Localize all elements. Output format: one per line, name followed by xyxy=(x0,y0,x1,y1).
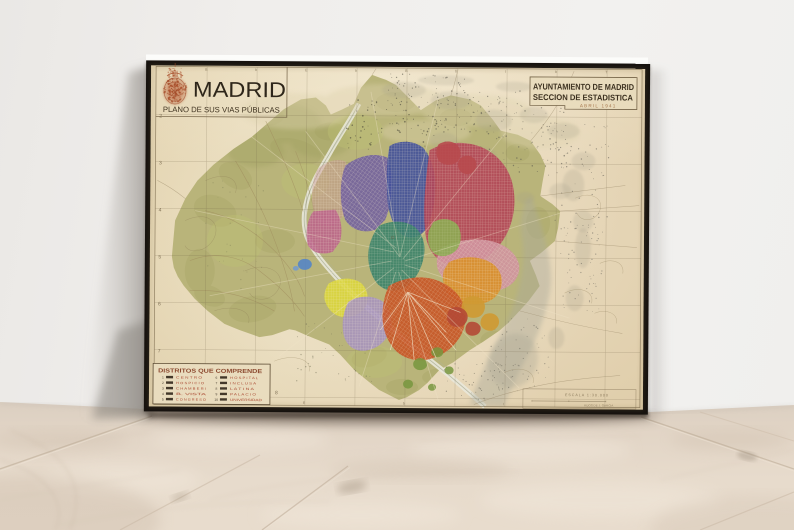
svg-text:I: I xyxy=(503,402,504,406)
svg-text:C E N T R O: C E N T R O xyxy=(176,376,203,380)
svg-text:C H A M B E R I: C H A M B E R I xyxy=(176,387,206,391)
svg-text:B. VISTA: B. VISTA xyxy=(176,392,208,396)
svg-text:5: 5 xyxy=(158,254,161,260)
svg-text:I: I xyxy=(505,70,506,74)
svg-text:P A L A C I O: P A L A C I O xyxy=(230,392,257,396)
svg-text:3: 3 xyxy=(162,386,164,390)
svg-text:UNIVERSIDAD: UNIVERSIDAD xyxy=(230,398,263,402)
svg-text:H O S P I C I O: H O S P I C I O xyxy=(176,381,205,385)
svg-text:10: 10 xyxy=(214,398,218,402)
svg-text:8: 8 xyxy=(275,390,278,396)
svg-text:O: O xyxy=(391,235,395,240)
svg-text:b: b xyxy=(255,68,257,72)
svg-text:L A T I N A: L A T I N A xyxy=(230,387,255,391)
svg-text:6: 6 xyxy=(158,301,161,307)
svg-text:9: 9 xyxy=(215,392,217,396)
svg-text:DISTRITOS QUE COMPRENDE: DISTRITOS QUE COMPRENDE xyxy=(158,368,262,375)
svg-text:ABRIL 1941: ABRIL 1941 xyxy=(580,103,617,108)
svg-text:I N C L U S A: I N C L U S A xyxy=(230,381,257,385)
svg-text:8: 8 xyxy=(215,387,217,391)
svg-text:PLANO DE SUS VIAS PÚBLICAS: PLANO DE SUS VIAS PÚBLICAS xyxy=(163,105,280,115)
svg-text:H O S P I T A L: H O S P I T A L xyxy=(230,376,258,380)
svg-text:MADRID: MADRID xyxy=(193,78,286,103)
svg-text:ESCALA 1:30.000: ESCALA 1:30.000 xyxy=(565,393,609,397)
svg-text:SECCION DE ESTADISTICA: SECCION DE ESTADISTICA xyxy=(533,93,633,103)
svg-text:HIJOS DE J. GARCIA: HIJOS DE J. GARCIA xyxy=(584,403,613,407)
svg-text:4: 4 xyxy=(159,207,162,213)
svg-text:5: 5 xyxy=(162,397,164,401)
svg-text:AYUNTAMIENTO DE MADRID: AYUNTAMIENTO DE MADRID xyxy=(533,81,634,92)
svg-text:1: 1 xyxy=(162,375,164,379)
svg-text:b: b xyxy=(355,69,357,73)
svg-text:6: 6 xyxy=(216,376,218,380)
svg-text:7: 7 xyxy=(158,348,161,354)
svg-text:3: 3 xyxy=(159,160,162,166)
svg-text:2: 2 xyxy=(162,381,164,385)
svg-text:7: 7 xyxy=(216,381,218,385)
svg-text:b: b xyxy=(455,69,457,73)
svg-text:b: b xyxy=(555,70,557,74)
svg-text:b: b xyxy=(403,402,405,406)
svg-text:C O N G R E S O: C O N G R E S O xyxy=(176,398,207,402)
svg-text:4: 4 xyxy=(162,392,164,396)
